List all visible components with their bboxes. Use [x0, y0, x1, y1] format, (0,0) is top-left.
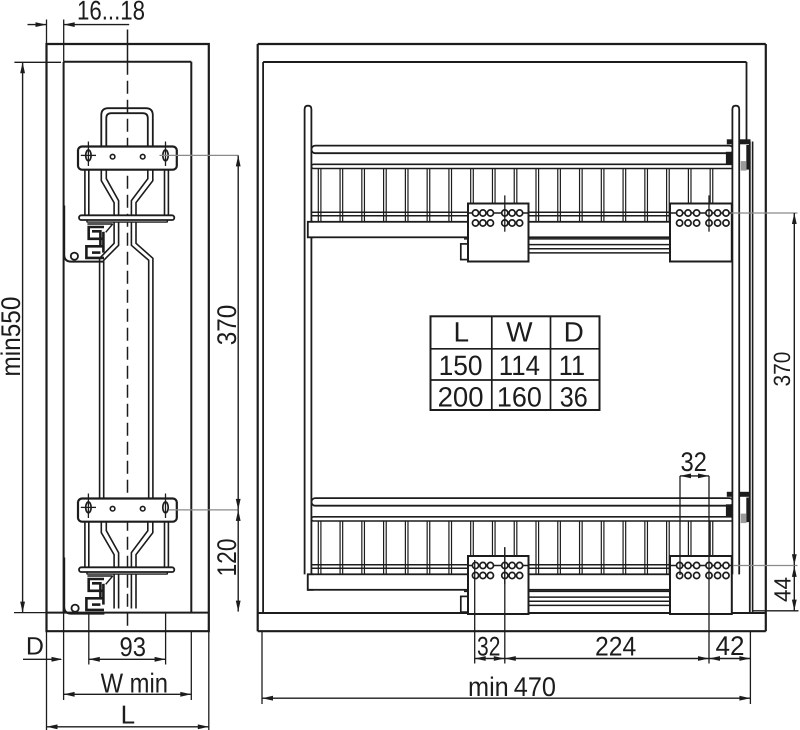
- svg-text:D: D: [564, 317, 584, 348]
- svg-text:min 470: min 470: [468, 672, 556, 702]
- svg-text:L: L: [454, 317, 470, 348]
- svg-text:W min: W min: [101, 668, 168, 699]
- svg-text:min550: min550: [0, 297, 26, 377]
- svg-text:120: 120: [212, 538, 242, 576]
- svg-text:32: 32: [477, 632, 500, 662]
- svg-text:160: 160: [497, 381, 542, 412]
- svg-text:11: 11: [559, 350, 585, 381]
- svg-text:93: 93: [120, 632, 147, 662]
- svg-text:114: 114: [499, 350, 540, 381]
- svg-text:224: 224: [595, 632, 636, 662]
- svg-text:D: D: [26, 633, 44, 661]
- svg-text:36: 36: [560, 381, 588, 412]
- svg-text:370: 370: [212, 305, 242, 346]
- svg-text:42: 42: [716, 631, 745, 661]
- svg-text:200: 200: [438, 381, 484, 412]
- svg-text:L: L: [121, 700, 135, 730]
- svg-text:16...18: 16...18: [77, 0, 145, 26]
- svg-text:32: 32: [680, 447, 707, 477]
- svg-text:150: 150: [439, 350, 483, 381]
- svg-text:370: 370: [769, 352, 795, 387]
- svg-text:44: 44: [769, 577, 795, 602]
- svg-text:W: W: [506, 317, 533, 348]
